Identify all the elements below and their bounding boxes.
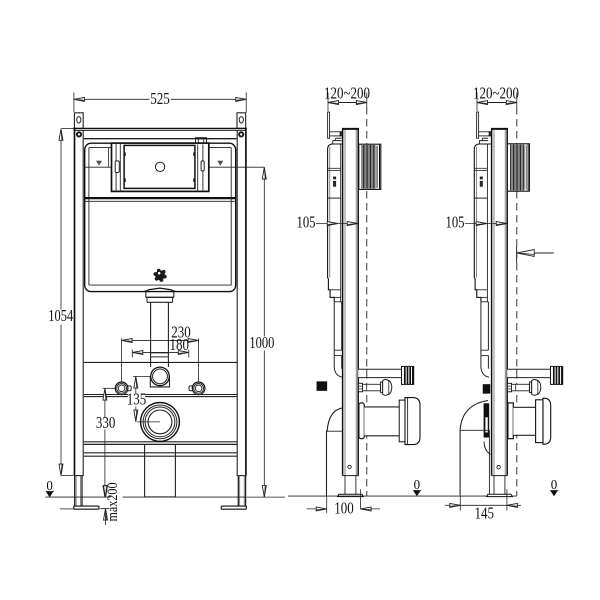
svg-text:135: 135: [127, 389, 147, 408]
svg-text:330: 330: [96, 413, 116, 432]
svg-text:120~200: 120~200: [324, 83, 370, 102]
svg-text:105: 105: [297, 213, 316, 232]
svg-text:145: 145: [474, 504, 494, 523]
svg-text:max200: max200: [105, 483, 121, 522]
svg-text:100: 100: [334, 499, 354, 518]
svg-text:105: 105: [446, 213, 465, 232]
svg-text:120~200: 120~200: [473, 83, 519, 102]
svg-text:0: 0: [551, 477, 558, 492]
svg-text:1000: 1000: [249, 333, 274, 352]
svg-text:0: 0: [46, 478, 53, 493]
svg-text:180: 180: [170, 335, 190, 354]
svg-text:0: 0: [414, 477, 421, 492]
svg-text:525: 525: [150, 89, 170, 108]
svg-text:1054: 1054: [48, 306, 73, 325]
